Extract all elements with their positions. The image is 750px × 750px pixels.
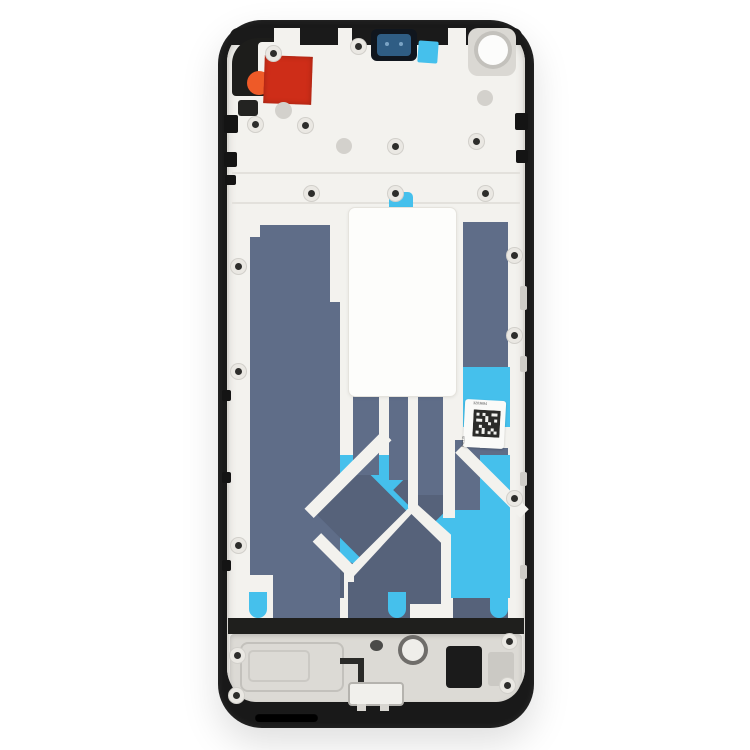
screw bbox=[235, 368, 242, 375]
rail-notch bbox=[515, 113, 528, 130]
bracket-tab bbox=[448, 28, 466, 45]
screw bbox=[355, 43, 362, 50]
rail-slot bbox=[520, 472, 527, 486]
rail-slot bbox=[520, 286, 527, 310]
screw bbox=[473, 138, 480, 145]
adhesive-panel-left-shoulder bbox=[330, 302, 340, 618]
white-channel-vertical bbox=[408, 390, 418, 508]
red-protective-sticker bbox=[263, 55, 313, 105]
screw bbox=[234, 652, 241, 659]
cyan-pull-tab bbox=[490, 592, 508, 618]
camera-window bbox=[377, 34, 411, 56]
rail-notch bbox=[224, 115, 238, 133]
screw bbox=[270, 50, 277, 57]
adhesive-bar bbox=[418, 395, 443, 495]
alignment-hole bbox=[336, 138, 352, 154]
chassis-etched-inner bbox=[248, 650, 310, 682]
adhesive-panel-left bbox=[250, 225, 330, 575]
rail-notch bbox=[224, 152, 237, 167]
adhesive-panel-right-upper bbox=[463, 222, 508, 367]
front-camera-hole bbox=[478, 35, 508, 65]
rail-notch bbox=[516, 150, 528, 163]
cyan-pull-tab bbox=[249, 592, 267, 618]
rail-notch bbox=[225, 175, 236, 185]
rail-slot bbox=[520, 356, 527, 372]
screw bbox=[504, 682, 511, 689]
rail-notch bbox=[222, 560, 231, 571]
chassis-knob bbox=[370, 640, 383, 651]
panel-notch bbox=[250, 225, 260, 237]
adhesive-bar bbox=[389, 395, 408, 480]
screw bbox=[511, 332, 518, 339]
chassis-hole bbox=[402, 639, 424, 661]
product-photo-page: { "scene": { "description": "E-commerce … bbox=[0, 0, 750, 750]
screw bbox=[252, 121, 259, 128]
screw bbox=[233, 692, 240, 699]
qr-label-side-text: P11115 bbox=[461, 436, 465, 447]
seam-line bbox=[232, 172, 520, 174]
screw bbox=[482, 190, 489, 197]
chassis-junction-bar bbox=[228, 618, 524, 634]
seam-line bbox=[232, 202, 520, 204]
screw bbox=[235, 542, 242, 549]
speaker-module bbox=[446, 646, 482, 688]
alignment-hole bbox=[477, 90, 493, 106]
qr-code bbox=[472, 409, 500, 437]
screw bbox=[506, 638, 513, 645]
cyan-pull-tab bbox=[388, 592, 406, 618]
screw bbox=[302, 122, 309, 129]
screw bbox=[511, 495, 518, 502]
rail-notch bbox=[222, 472, 231, 483]
rail-notch bbox=[222, 390, 231, 401]
battery-area-liner-sticker bbox=[348, 207, 457, 397]
connector-prong bbox=[357, 704, 366, 711]
phone-middle-frame: 3203694 P11115 bbox=[218, 20, 534, 728]
rail-slot bbox=[520, 565, 527, 579]
camera-glint bbox=[399, 42, 403, 46]
screw bbox=[308, 190, 315, 197]
chassis-gray-block bbox=[488, 652, 514, 686]
screw bbox=[392, 143, 399, 150]
adhesive-panel-left-foot bbox=[273, 575, 330, 618]
usb-connector bbox=[348, 682, 404, 706]
cyan-adhesive-sticker-top bbox=[417, 40, 438, 63]
screw bbox=[235, 263, 242, 270]
bottom-frame-slot bbox=[255, 713, 318, 722]
connector-prong bbox=[380, 704, 389, 711]
qr-label-top-text: 3203694 bbox=[473, 401, 487, 405]
white-channel-vertical bbox=[443, 390, 455, 518]
alignment-hole bbox=[275, 102, 292, 119]
qr-label-sticker: 3203694 P11115 bbox=[463, 399, 506, 449]
screw bbox=[511, 252, 518, 259]
corner-dark-recess bbox=[238, 100, 258, 116]
chassis-channel bbox=[358, 658, 364, 684]
screw bbox=[392, 190, 399, 197]
bracket-tab bbox=[338, 28, 352, 45]
camera-glint bbox=[385, 42, 389, 46]
